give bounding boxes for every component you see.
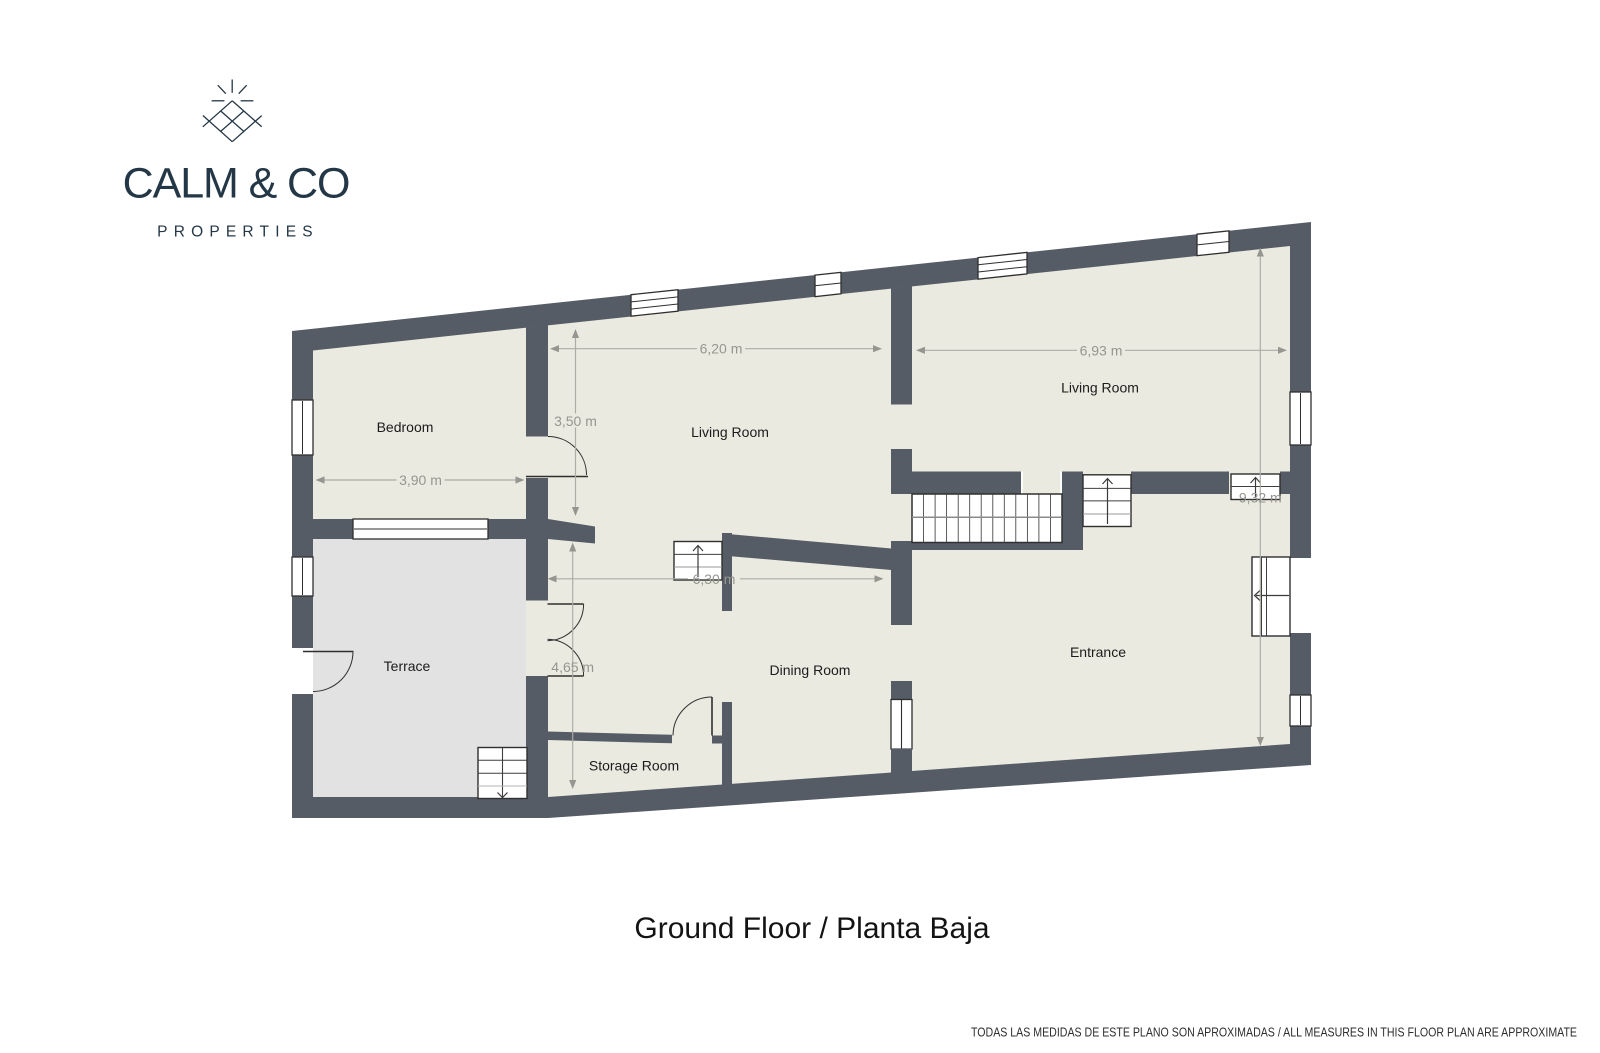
svg-text:3,90 m: 3,90 m <box>399 472 442 488</box>
svg-text:6,93 m: 6,93 m <box>1080 342 1123 358</box>
svg-text:6,30 m: 6,30 m <box>693 571 736 587</box>
svg-text:Ground Floor / Planta Baja: Ground Floor / Planta Baja <box>634 912 990 945</box>
svg-text:9,32 m: 9,32 m <box>1239 490 1282 506</box>
svg-text:Terrace: Terrace <box>384 658 431 674</box>
svg-text:PROPERTIES: PROPERTIES <box>157 224 319 241</box>
svg-text:Dining Room: Dining Room <box>770 662 851 678</box>
svg-text:Storage Room: Storage Room <box>589 758 679 774</box>
svg-text:Living Room: Living Room <box>691 424 769 440</box>
svg-text:3,50 m: 3,50 m <box>554 413 597 429</box>
svg-text:Entrance: Entrance <box>1070 644 1126 660</box>
svg-text:Living Room: Living Room <box>1061 380 1139 396</box>
svg-text:CALM & CO: CALM & CO <box>123 160 350 208</box>
svg-text:TODAS LAS MEDIDAS DE ESTE PLAN: TODAS LAS MEDIDAS DE ESTE PLANO SON APRO… <box>971 1025 1577 1040</box>
svg-text:Bedroom: Bedroom <box>377 419 434 435</box>
svg-text:6,20 m: 6,20 m <box>700 341 743 357</box>
svg-text:4,65 m: 4,65 m <box>551 659 594 675</box>
